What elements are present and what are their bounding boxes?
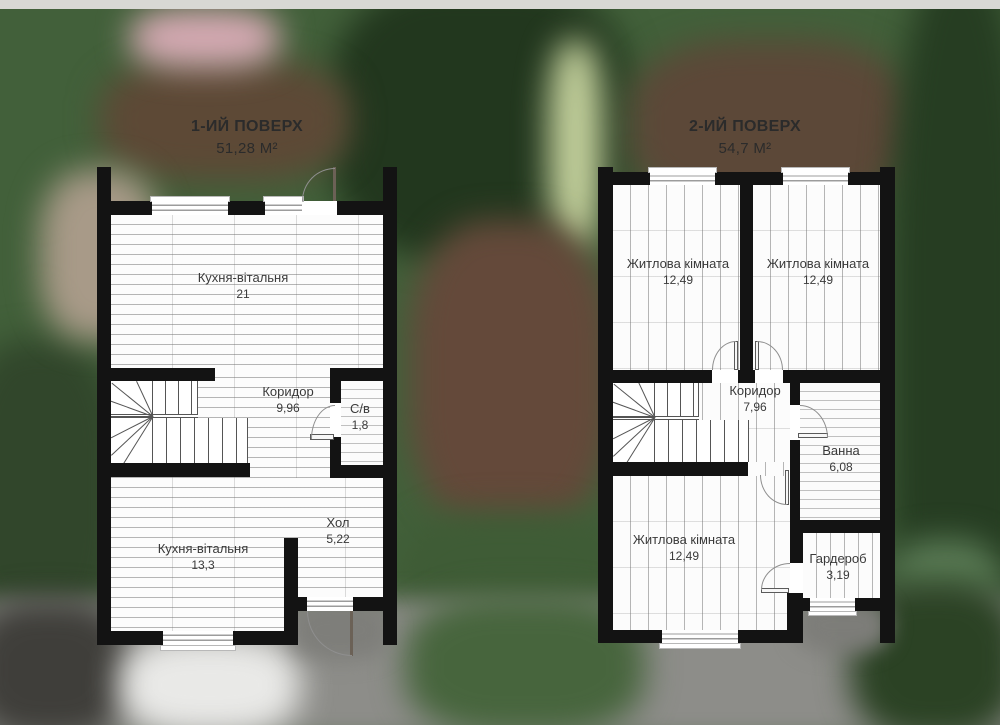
stair-upper-flight (654, 383, 699, 416)
room-area: 1,8 (350, 418, 370, 434)
room-area: 21 (198, 287, 289, 303)
wall (598, 167, 613, 643)
wall (330, 465, 383, 478)
wall (790, 383, 800, 405)
wall (855, 598, 880, 611)
room-name: Ванна (822, 443, 860, 460)
window (810, 598, 855, 611)
doorway (302, 201, 337, 215)
wall (284, 538, 298, 645)
room-area: 7,96 (729, 400, 780, 416)
room-name: Коридор (729, 383, 780, 400)
window (662, 630, 738, 643)
wall (790, 440, 800, 520)
room-area: 12,49 (633, 549, 735, 565)
wall (330, 368, 341, 403)
wall (740, 185, 753, 373)
window-sill (160, 645, 236, 651)
room-label-wc: С/в 1,8 (350, 401, 370, 433)
wall (111, 368, 215, 381)
room-area: 9,96 (262, 401, 313, 417)
room-area: 5,22 (326, 532, 349, 548)
room-label-bath: Ванна 6,08 (822, 443, 860, 475)
wall (353, 597, 383, 611)
floor1-total-area: 51,28 М² (191, 138, 303, 160)
wall (790, 520, 895, 533)
room-label-corridor2: Коридор 7,96 (729, 383, 780, 415)
window (265, 201, 302, 215)
window-sill (659, 643, 741, 649)
room-label-bedroom-left: Житлова кімната 12,49 (627, 256, 729, 288)
wall (298, 597, 307, 611)
doorway (755, 370, 783, 383)
window (163, 631, 233, 645)
room-name: Житлова кімната (627, 256, 729, 273)
room-name: Житлова кімната (767, 256, 869, 273)
wall (330, 437, 341, 465)
room-label-corridor: Коридор 9,96 (262, 384, 313, 416)
wall (613, 462, 748, 476)
room-area: 12,49 (767, 273, 869, 289)
wall (790, 598, 810, 611)
stair-lower-flight (152, 418, 248, 463)
wall (880, 167, 895, 643)
wall (790, 533, 803, 563)
floor2-title: 2-ИЙ ПОВЕРХ 54,7 М² (689, 115, 801, 160)
floor2-plan: Житлова кімната 12,49 Житлова кімната 12… (598, 167, 895, 643)
wall (738, 370, 755, 383)
wall (111, 463, 250, 477)
window-sill (808, 611, 857, 616)
window (152, 201, 228, 215)
doorway (790, 563, 803, 593)
room-name: Житлова кімната (633, 532, 735, 549)
wall (228, 201, 265, 215)
wall (111, 201, 152, 215)
wall (715, 172, 783, 185)
stair-lower-flight (654, 420, 749, 462)
room-label-kitchen-bottom: Кухня-вітальня 13,3 (158, 541, 249, 573)
wall (848, 172, 880, 185)
room-label-hall: Хол 5,22 (326, 515, 349, 547)
room-label-bedroom-bottom: Житлова кімната 12,49 (633, 532, 735, 564)
room-label-kitchen-top: Кухня-вітальня 21 (198, 270, 289, 302)
floor1-title-text: 1-ИЙ ПОВЕРХ (191, 115, 303, 138)
wall (613, 370, 712, 383)
floor2-title-text: 2-ИЙ ПОВЕРХ (689, 115, 801, 138)
wall (337, 201, 383, 215)
room-area: 3,19 (809, 568, 866, 584)
room-name: Хол (326, 515, 349, 532)
room-area: 6,08 (822, 460, 860, 476)
photo-top-edge (0, 0, 1000, 9)
room-name: Кухня-вітальня (198, 270, 289, 287)
window (650, 172, 715, 185)
wall (613, 172, 650, 185)
room-area: 13,3 (158, 558, 249, 574)
door-arc (302, 168, 335, 201)
room-area: 12,49 (627, 273, 729, 289)
room-name: Кухня-вітальня (158, 541, 249, 558)
room-label-bedroom-right: Житлова кімната 12,49 (767, 256, 869, 288)
entrance-threshold (307, 597, 353, 611)
room-name: С/в (350, 401, 370, 418)
room-label-wardrobe: Гардероб 3,19 (809, 551, 866, 583)
wall (383, 167, 397, 645)
doorway (712, 370, 738, 383)
floor2-total-area: 54,7 М² (689, 138, 801, 160)
room-name: Гардероб (809, 551, 866, 568)
stair-upper-flight (152, 381, 198, 414)
window (783, 172, 848, 185)
floor1-title: 1-ИЙ ПОВЕРХ 51,28 М² (191, 115, 303, 160)
wall (97, 167, 111, 645)
floor1-plan: Кухня-вітальня 21 Коридор 9,96 С/в 1,8 К… (97, 167, 397, 645)
room-name: Коридор (262, 384, 313, 401)
wall (783, 370, 880, 383)
